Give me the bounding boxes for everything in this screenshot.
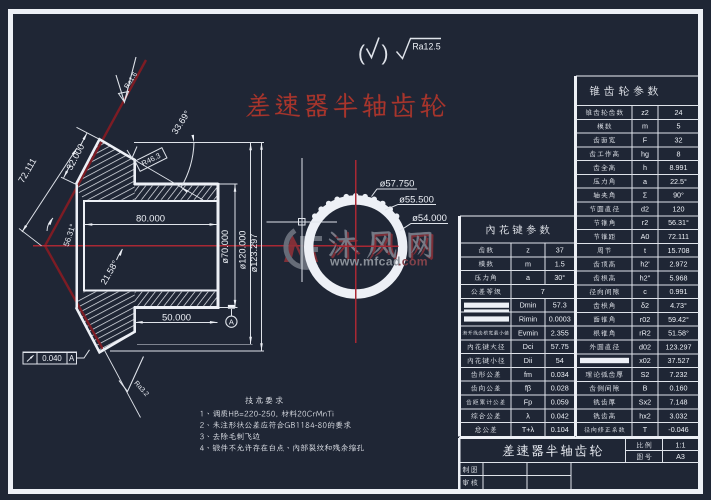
svg-text:a: a bbox=[526, 273, 530, 282]
svg-text:A3: A3 bbox=[676, 452, 685, 461]
svg-text:m: m bbox=[642, 122, 648, 131]
svg-text:123.297: 123.297 bbox=[666, 342, 692, 351]
svg-text:1:1: 1:1 bbox=[676, 441, 686, 450]
svg-text:z: z bbox=[526, 245, 530, 254]
svg-text:x02: x02 bbox=[639, 356, 651, 365]
svg-text:z2: z2 bbox=[641, 108, 649, 117]
svg-text:7.148: 7.148 bbox=[670, 398, 688, 407]
svg-text:Dmin: Dmin bbox=[520, 301, 537, 310]
svg-text:0.059: 0.059 bbox=[551, 397, 569, 406]
svg-text:λ: λ bbox=[526, 411, 530, 420]
svg-text:ø123.297: ø123.297 bbox=[249, 234, 259, 273]
svg-text:Ra12.5: Ra12.5 bbox=[412, 41, 440, 51]
svg-text:t: t bbox=[644, 246, 646, 255]
svg-text:80.000: 80.000 bbox=[136, 213, 165, 224]
svg-text:37.527: 37.527 bbox=[668, 356, 690, 365]
svg-text:): ) bbox=[382, 42, 389, 65]
svg-text:F: F bbox=[643, 135, 648, 144]
svg-text:0.028: 0.028 bbox=[551, 384, 569, 393]
svg-text:Dci: Dci bbox=[523, 342, 534, 351]
svg-text:T+λ: T+λ bbox=[522, 425, 535, 434]
svg-text:56.31°: 56.31° bbox=[668, 218, 689, 227]
svg-text:h: h bbox=[643, 163, 647, 172]
svg-text:hx2: hx2 bbox=[639, 411, 651, 420]
svg-text:90°: 90° bbox=[673, 191, 684, 200]
svg-text:22.5°: 22.5° bbox=[670, 177, 687, 186]
svg-text:2.972: 2.972 bbox=[670, 260, 688, 269]
svg-text:ø120.000: ø120.000 bbox=[237, 231, 247, 270]
svg-text:ø54.000: ø54.000 bbox=[412, 213, 447, 224]
svg-text:32: 32 bbox=[675, 135, 683, 144]
svg-text:www.mfcad: www.mfcad bbox=[329, 255, 401, 269]
svg-text:m: m bbox=[525, 259, 531, 268]
svg-text:37: 37 bbox=[556, 245, 564, 254]
svg-text:0.034: 0.034 bbox=[551, 370, 569, 379]
svg-text:Evmin: Evmin bbox=[518, 328, 538, 337]
svg-text:B: B bbox=[643, 384, 648, 393]
svg-text:d2: d2 bbox=[641, 204, 649, 213]
svg-text:.com: .com bbox=[398, 255, 428, 269]
svg-text:Fp: Fp bbox=[524, 397, 532, 406]
svg-text:hg: hg bbox=[641, 149, 649, 158]
svg-text:2.355: 2.355 bbox=[551, 328, 569, 337]
svg-text:0.104: 0.104 bbox=[551, 425, 569, 434]
svg-text:57.3: 57.3 bbox=[553, 301, 567, 310]
svg-text:120: 120 bbox=[673, 204, 685, 213]
svg-text:59.42°: 59.42° bbox=[668, 315, 689, 324]
svg-text:0.991: 0.991 bbox=[670, 287, 688, 296]
svg-text:30°: 30° bbox=[554, 273, 565, 282]
svg-text:54: 54 bbox=[556, 356, 564, 365]
svg-text:A: A bbox=[69, 354, 75, 363]
svg-text:T: T bbox=[643, 425, 648, 434]
svg-text:7.232: 7.232 bbox=[670, 370, 688, 379]
svg-text:5.968: 5.968 bbox=[670, 273, 688, 282]
svg-text:72.111: 72.111 bbox=[668, 232, 689, 241]
svg-text:0.040: 0.040 bbox=[42, 354, 62, 363]
svg-text:15.708: 15.708 bbox=[668, 246, 690, 255]
svg-text:Dii: Dii bbox=[524, 356, 533, 365]
svg-text:57.75: 57.75 bbox=[551, 342, 569, 351]
svg-text:8.991: 8.991 bbox=[670, 163, 688, 172]
svg-text:a: a bbox=[643, 177, 647, 186]
svg-text:24: 24 bbox=[675, 108, 683, 117]
svg-text:S2: S2 bbox=[641, 370, 650, 379]
svg-text:4.73°: 4.73° bbox=[670, 301, 687, 310]
svg-text:Σ: Σ bbox=[643, 191, 648, 200]
svg-text:Rimin: Rimin bbox=[519, 315, 537, 324]
svg-text:7: 7 bbox=[541, 287, 545, 296]
svg-text:8: 8 bbox=[677, 149, 681, 158]
svg-text:1.5: 1.5 bbox=[555, 259, 565, 268]
svg-text:3.032: 3.032 bbox=[670, 411, 688, 420]
svg-text:h2'': h2'' bbox=[640, 273, 651, 282]
svg-text:0.042: 0.042 bbox=[551, 411, 569, 420]
svg-text:ø57.750: ø57.750 bbox=[380, 179, 415, 190]
svg-text:50.000: 50.000 bbox=[162, 312, 191, 323]
svg-text:fm: fm bbox=[524, 370, 532, 379]
svg-text:ø70.000: ø70.000 bbox=[220, 230, 230, 264]
svg-text:0.160: 0.160 bbox=[670, 384, 688, 393]
svg-text:fβ: fβ bbox=[525, 384, 531, 393]
svg-text:r02: r02 bbox=[640, 315, 650, 324]
svg-text:d02: d02 bbox=[639, 342, 651, 351]
svg-text:-0.046: -0.046 bbox=[668, 425, 688, 434]
svg-text:ø55.500: ø55.500 bbox=[399, 195, 434, 206]
svg-text:(: ( bbox=[358, 42, 365, 65]
svg-text:51.58°: 51.58° bbox=[668, 329, 689, 338]
svg-text:5: 5 bbox=[677, 122, 681, 131]
svg-text:c: c bbox=[643, 287, 647, 296]
svg-text:r2: r2 bbox=[642, 218, 648, 227]
svg-text:0.0003: 0.0003 bbox=[549, 315, 571, 324]
svg-text:δ2: δ2 bbox=[641, 301, 649, 310]
svg-text:A0: A0 bbox=[641, 232, 650, 241]
svg-text:Sx2: Sx2 bbox=[639, 398, 651, 407]
svg-text:rR2: rR2 bbox=[639, 329, 651, 338]
svg-text:h2': h2' bbox=[640, 260, 650, 269]
svg-text:A: A bbox=[229, 318, 234, 327]
